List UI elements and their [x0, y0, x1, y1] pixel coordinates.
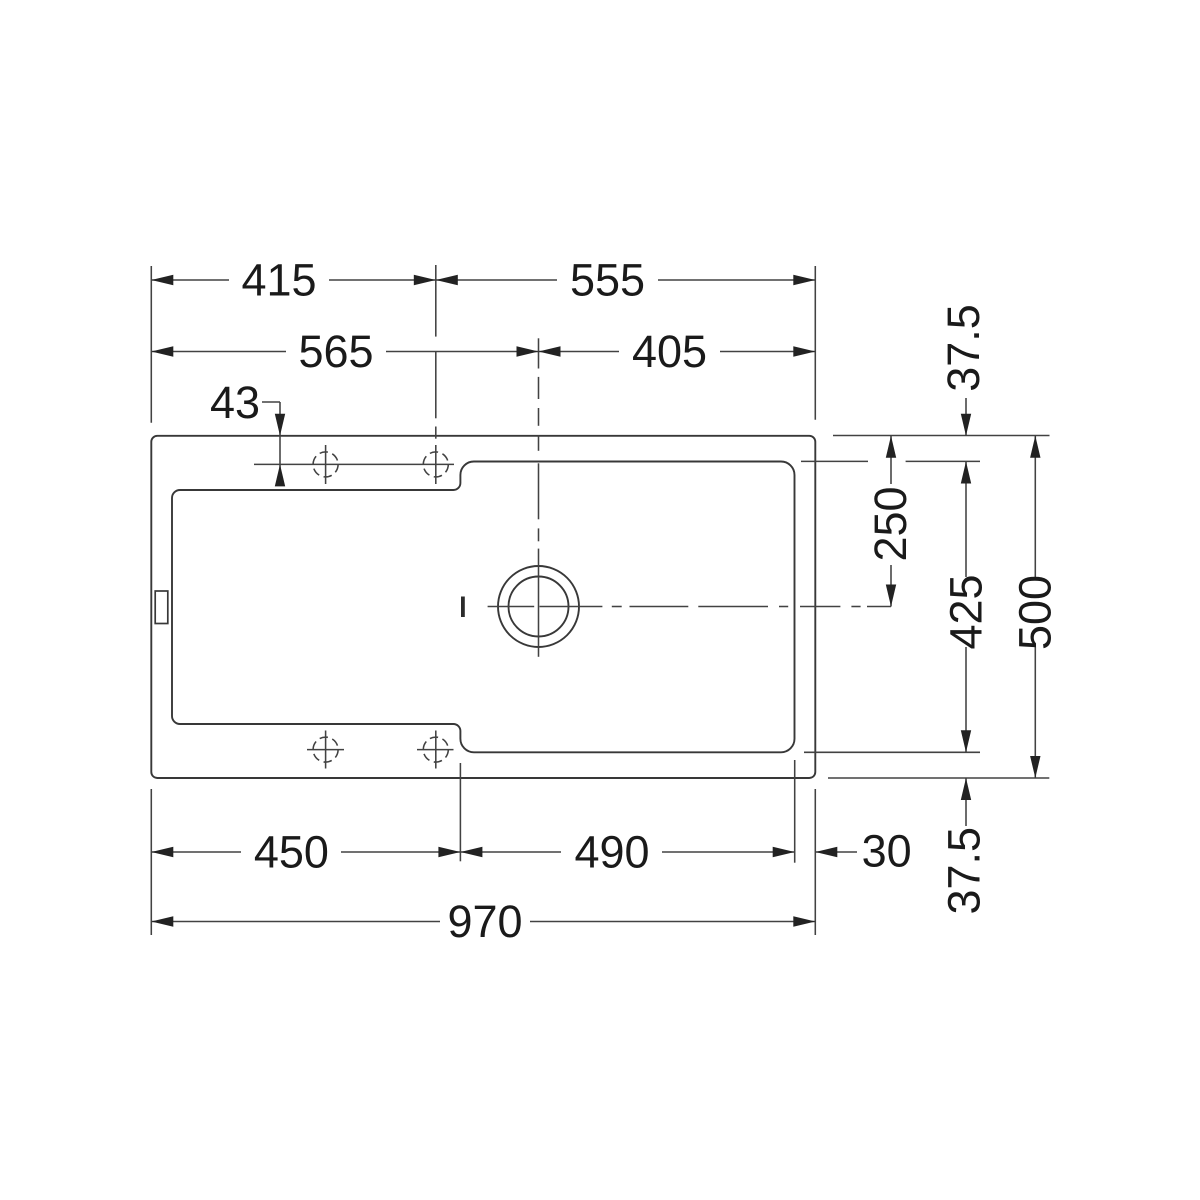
svg-text:405: 405 [632, 326, 707, 377]
svg-text:450: 450 [254, 827, 329, 878]
svg-text:425: 425 [940, 574, 991, 649]
svg-text:500: 500 [1010, 575, 1061, 650]
svg-text:490: 490 [574, 827, 649, 878]
svg-text:250: 250 [865, 486, 916, 561]
svg-text:43: 43 [210, 377, 260, 428]
svg-text:415: 415 [241, 255, 316, 306]
svg-text:555: 555 [570, 255, 645, 306]
svg-text:565: 565 [298, 326, 373, 377]
svg-text:970: 970 [447, 896, 522, 947]
svg-text:37.5: 37.5 [939, 827, 990, 915]
svg-text:30: 30 [862, 826, 912, 877]
svg-text:37.5: 37.5 [938, 304, 989, 392]
